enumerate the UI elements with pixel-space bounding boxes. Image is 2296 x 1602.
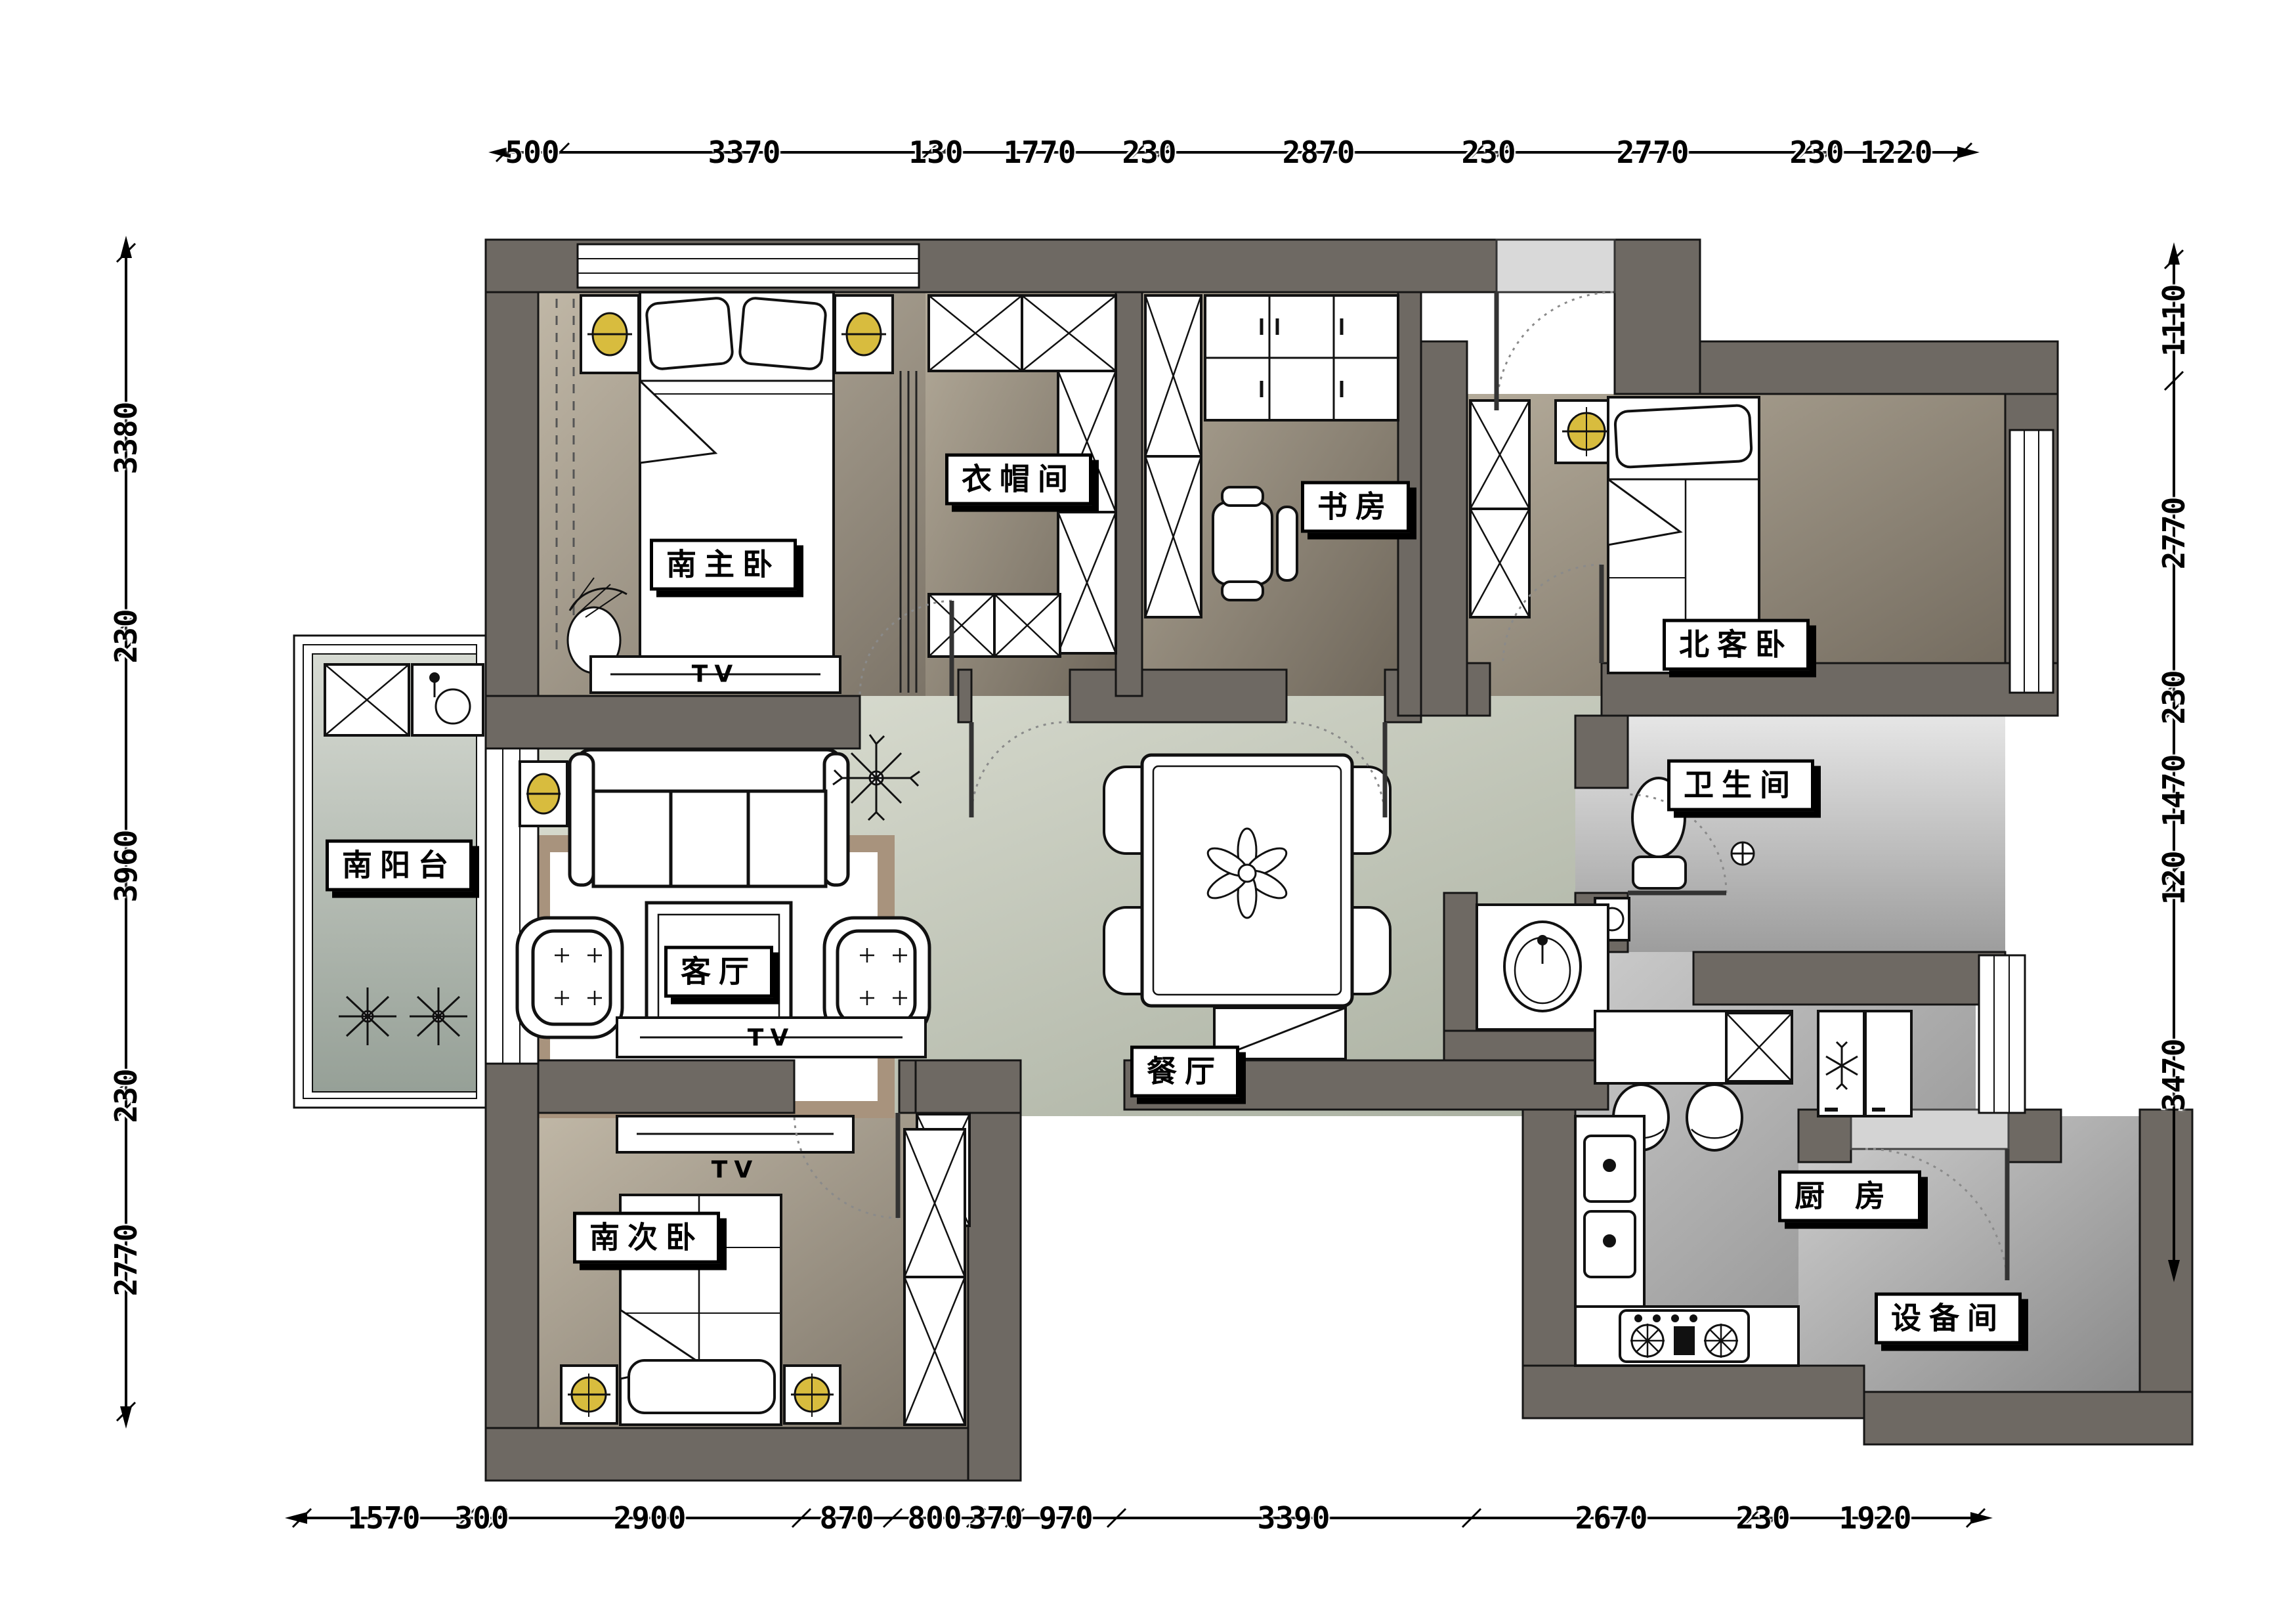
- master-bed: [640, 292, 834, 657]
- room-label-dining-room: 餐厅: [1130, 1046, 1239, 1098]
- floor-plan-drawing: [0, 0, 2296, 1602]
- dim-bottom-6: 970: [1038, 1500, 1093, 1536]
- kitchen-window: [1979, 955, 2025, 1113]
- room-label-master-bedroom: 南主卧: [650, 539, 797, 591]
- room-label-study: 书房: [1301, 481, 1410, 533]
- armchair-left: [517, 918, 622, 1037]
- vanity-sink: [1477, 905, 1608, 1029]
- floor-drain: [1732, 842, 1754, 865]
- dim-top-4: 230: [1122, 135, 1176, 170]
- dim-top-8: 230: [1789, 135, 1844, 170]
- tv-annotation-living: TV: [748, 1025, 795, 1052]
- dim-left-3: 230: [108, 1068, 144, 1123]
- dim-bottom-2: 2900: [614, 1500, 687, 1536]
- study-wardrobe: [1145, 295, 1201, 617]
- second-bedroom-tv-cabinet: [617, 1116, 853, 1152]
- dim-top-1: 3370: [708, 135, 781, 170]
- dim-top-9: 1220: [1860, 135, 1933, 170]
- room-label-guest-bedroom: 北客卧: [1663, 619, 1810, 671]
- room-label-living-room: 客厅: [664, 946, 773, 998]
- guest-bedroom-window: [2010, 430, 2053, 693]
- dim-top-6: 230: [1461, 135, 1516, 170]
- master-bedroom-window: [578, 244, 919, 288]
- dim-left-2: 3960: [108, 830, 144, 903]
- dim-bottom-10: 1920: [1839, 1500, 1912, 1536]
- dim-bottom-8: 2670: [1575, 1500, 1648, 1536]
- dim-left-4: 2770: [108, 1224, 144, 1297]
- floor-plan-page: 南主卧 衣帽间 书房 北客卧 南阳台 客厅 餐厅 卫生间 厨房 设备间 南次卧 …: [0, 0, 2296, 1602]
- room-label-equipment-room: 设备间: [1875, 1293, 2022, 1345]
- dim-top-2: 130: [908, 135, 963, 170]
- kitchen-sink-counter: [1575, 1116, 1644, 1307]
- second-bedroom-wardrobe: [904, 1129, 965, 1425]
- dim-left-0: 3380: [108, 402, 144, 475]
- dim-bottom-7: 3390: [1258, 1500, 1330, 1536]
- dim-bottom-0: 1570: [348, 1500, 421, 1536]
- room-label-balcony: 南阳台: [326, 840, 473, 892]
- dim-right-1: 2770: [2156, 497, 2192, 570]
- gas-stove-counter: [1575, 1307, 1798, 1366]
- sofa: [570, 750, 848, 886]
- room-label-cloakroom: 衣帽间: [945, 454, 1092, 506]
- dim-top-3: 1770: [1004, 135, 1076, 170]
- side-table-lamp: [520, 762, 567, 826]
- guest-wardrobe: [1470, 401, 1529, 617]
- kitchen-bar-counter: [1595, 1011, 1792, 1083]
- room-label-second-bedroom: 南次卧: [573, 1212, 720, 1264]
- dim-top-7: 2770: [1617, 135, 1690, 170]
- dim-right-0: 1110: [2156, 284, 2192, 357]
- tv-annotation-bedroom: TV: [712, 1157, 759, 1184]
- washing-machine: [325, 664, 409, 735]
- dim-top-5: 2870: [1283, 135, 1355, 170]
- dim-bottom-1: 300: [454, 1500, 509, 1536]
- dim-bottom-3: 870: [819, 1500, 874, 1536]
- dim-top-0: 500: [505, 135, 559, 170]
- dim-bottom-5: 370: [968, 1500, 1023, 1536]
- dim-right-3: 1470: [2156, 754, 2192, 827]
- tv-annotation-master: TV: [692, 661, 739, 688]
- fridge: [1818, 1011, 1911, 1116]
- dim-bottom-9: 230: [1735, 1500, 1790, 1536]
- dim-right-5: 3470: [2156, 1039, 2192, 1112]
- dim-bottom-4: 800: [907, 1500, 962, 1536]
- room-label-kitchen: 厨房: [1778, 1171, 1921, 1223]
- dim-left-1: 230: [108, 609, 144, 663]
- dining-table: [1142, 755, 1352, 1006]
- dim-right-2: 230: [2156, 670, 2192, 724]
- balcony-sink: [412, 664, 483, 735]
- study-bookcase: [1205, 295, 1398, 420]
- room-label-bathroom: 卫生间: [1667, 760, 1814, 812]
- dim-right-4: 120: [2156, 850, 2192, 905]
